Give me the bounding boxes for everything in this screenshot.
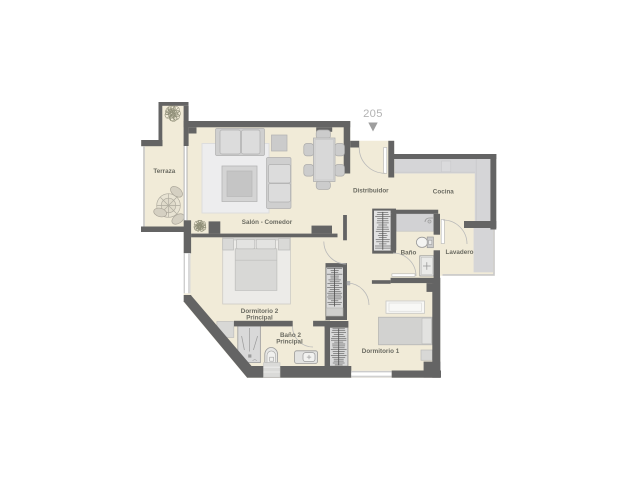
svg-text:Terraza: Terraza: [153, 168, 175, 175]
svg-text:Cocina: Cocina: [433, 188, 454, 195]
svg-text:Principal: Principal: [276, 339, 303, 346]
svg-text:Distribuidor: Distribuidor: [353, 187, 389, 194]
svg-text:Salón - Comedor: Salón - Comedor: [242, 219, 293, 226]
svg-text:Principal: Principal: [246, 314, 273, 321]
svg-text:Lavadero: Lavadero: [446, 249, 474, 256]
svg-text:205: 205: [363, 108, 383, 120]
svg-text:Baño: Baño: [401, 249, 417, 256]
svg-text:Dormitorio 1: Dormitorio 1: [362, 348, 400, 355]
